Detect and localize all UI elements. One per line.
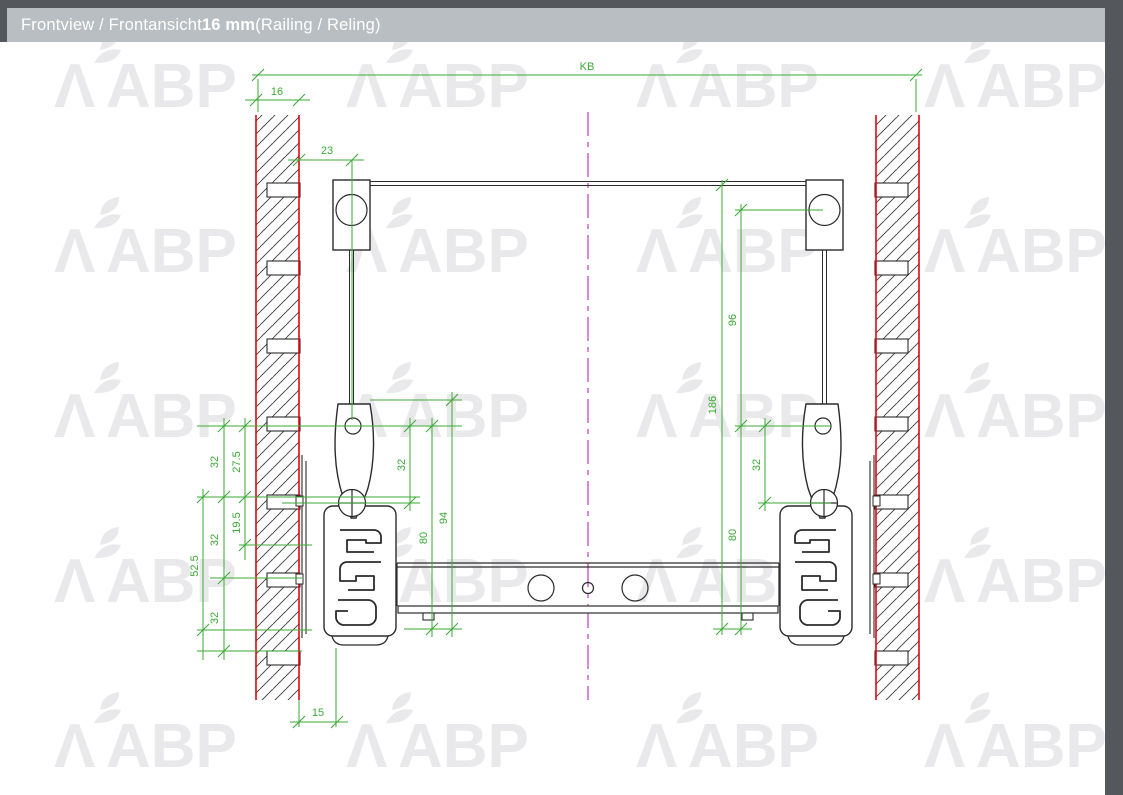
dim-label-32-left-inner: 32	[396, 459, 408, 471]
dim-label-15: 15	[312, 707, 324, 719]
dim-label-186: 186	[707, 396, 719, 414]
dim-label-96: 96	[727, 314, 739, 326]
drawing-page: Λ ABP	[0, 0, 1123, 795]
dim-label-94: 94	[438, 512, 450, 524]
title-suffix: (Railing / Reling)	[255, 16, 381, 35]
drawing-title-bar: Frontview / Frontansicht 16 mm (Railing …	[7, 8, 1105, 42]
dim-label-32-sys-mid: 32	[209, 534, 221, 546]
bottom-hole	[528, 575, 554, 601]
technical-drawing: Λ ABP	[0, 0, 1123, 795]
left-wall	[256, 115, 300, 700]
dim-label-kb: KB	[580, 61, 595, 73]
frame-right-border	[1105, 0, 1123, 795]
dim-label-80-right: 80	[727, 529, 739, 541]
frame-left-border	[0, 0, 7, 42]
dim-label-52-5: 52.5	[189, 555, 201, 576]
dim-label-32-right: 32	[751, 459, 763, 471]
watermark-layer	[54, 32, 1107, 781]
dim-label-27-5: 27.5	[231, 451, 243, 472]
dim-label-32-sys-bot: 32	[209, 612, 221, 624]
dim-label-16: 16	[271, 86, 283, 98]
right-wall	[875, 115, 919, 700]
title-size: 16 mm	[202, 16, 255, 35]
dim-label-80-left: 80	[418, 532, 430, 544]
dim-label-23: 23	[321, 145, 333, 157]
dim-label-32-sys-top: 32	[209, 456, 221, 468]
dim-label-19-5: 19.5	[231, 512, 243, 533]
frame-top-border	[0, 0, 1123, 8]
title-prefix: Frontview / Frontansicht	[21, 16, 202, 35]
